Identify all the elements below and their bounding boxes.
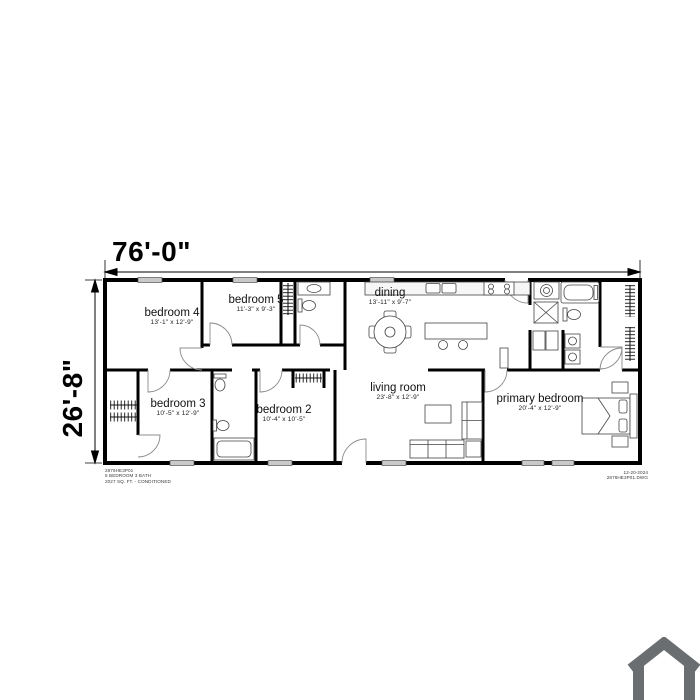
- room-label-bedroom-2: bedroom 2 10'-4" x 10'-5": [257, 405, 312, 424]
- floor-plan-drawing: [60, 235, 660, 505]
- window-icon: [233, 278, 257, 283]
- window-icon: [268, 461, 292, 466]
- title-block-left: 2876HE3P01 5 BEDROOM 3 BATH 2027 SQ. FT.…: [105, 468, 171, 484]
- pillow-icon: [619, 419, 627, 432]
- window-icon: [170, 461, 194, 466]
- pillow-icon: [619, 400, 627, 413]
- room-label-bedroom-4: bedroom 4 13'-1" x 12'-9": [145, 308, 200, 327]
- window-icon: [522, 461, 544, 466]
- kitchen-sink-icon: [442, 284, 456, 294]
- toilet-icon: [563, 308, 567, 321]
- toilet-icon: [214, 374, 226, 378]
- room-label-dining: dining 13'-11" x 9'-7": [369, 288, 412, 307]
- plan-area: 2027 SQ. FT. - CONDITIONED: [105, 479, 171, 484]
- toilet-icon: [568, 310, 581, 320]
- sink-icon: [213, 420, 217, 431]
- coffee-table-icon: [425, 405, 451, 423]
- stove-icon: [484, 282, 514, 295]
- toilet-icon: [298, 299, 302, 312]
- title-block-right: 12-20-2024 2876HE3P01.DWG: [560, 470, 648, 481]
- cabinet-icon: [500, 348, 508, 368]
- toilet-icon: [303, 301, 316, 311]
- kitchen-sink-icon: [426, 284, 440, 294]
- room-label-bedroom-3: bedroom 3 10'-5" x 12'-9": [151, 399, 206, 418]
- window-icon: [138, 278, 162, 283]
- room-label-bedroom-5: bedroom 5 11'-3" x 9'-3": [229, 295, 284, 314]
- toilet-icon: [215, 379, 225, 391]
- house-icon: [627, 637, 700, 700]
- floor-plan-page: 76'-0" 26'-8": [0, 0, 700, 700]
- plan-file-name: 2876HE3P01.DWG: [560, 475, 648, 480]
- room-label-primary-bedroom: primary bedroom 20'-4" x 12'-9": [497, 394, 584, 413]
- window-icon: [382, 461, 406, 466]
- end-table-icon: [466, 441, 481, 457]
- sofa-icon: [410, 440, 464, 458]
- room-label-living-room: living room 23'-8" x 12'-9": [370, 383, 426, 402]
- window-icon: [552, 461, 574, 466]
- kitchen-island: [425, 323, 487, 339]
- refrigerator-icon: [533, 331, 545, 350]
- stool-icon: [439, 341, 448, 350]
- sink-icon: [217, 421, 229, 431]
- nightstand-icon: [612, 382, 628, 393]
- nightstand-icon: [612, 436, 628, 447]
- headboard: [630, 394, 637, 438]
- pantry-icon: [546, 331, 558, 350]
- stool-icon: [459, 341, 468, 350]
